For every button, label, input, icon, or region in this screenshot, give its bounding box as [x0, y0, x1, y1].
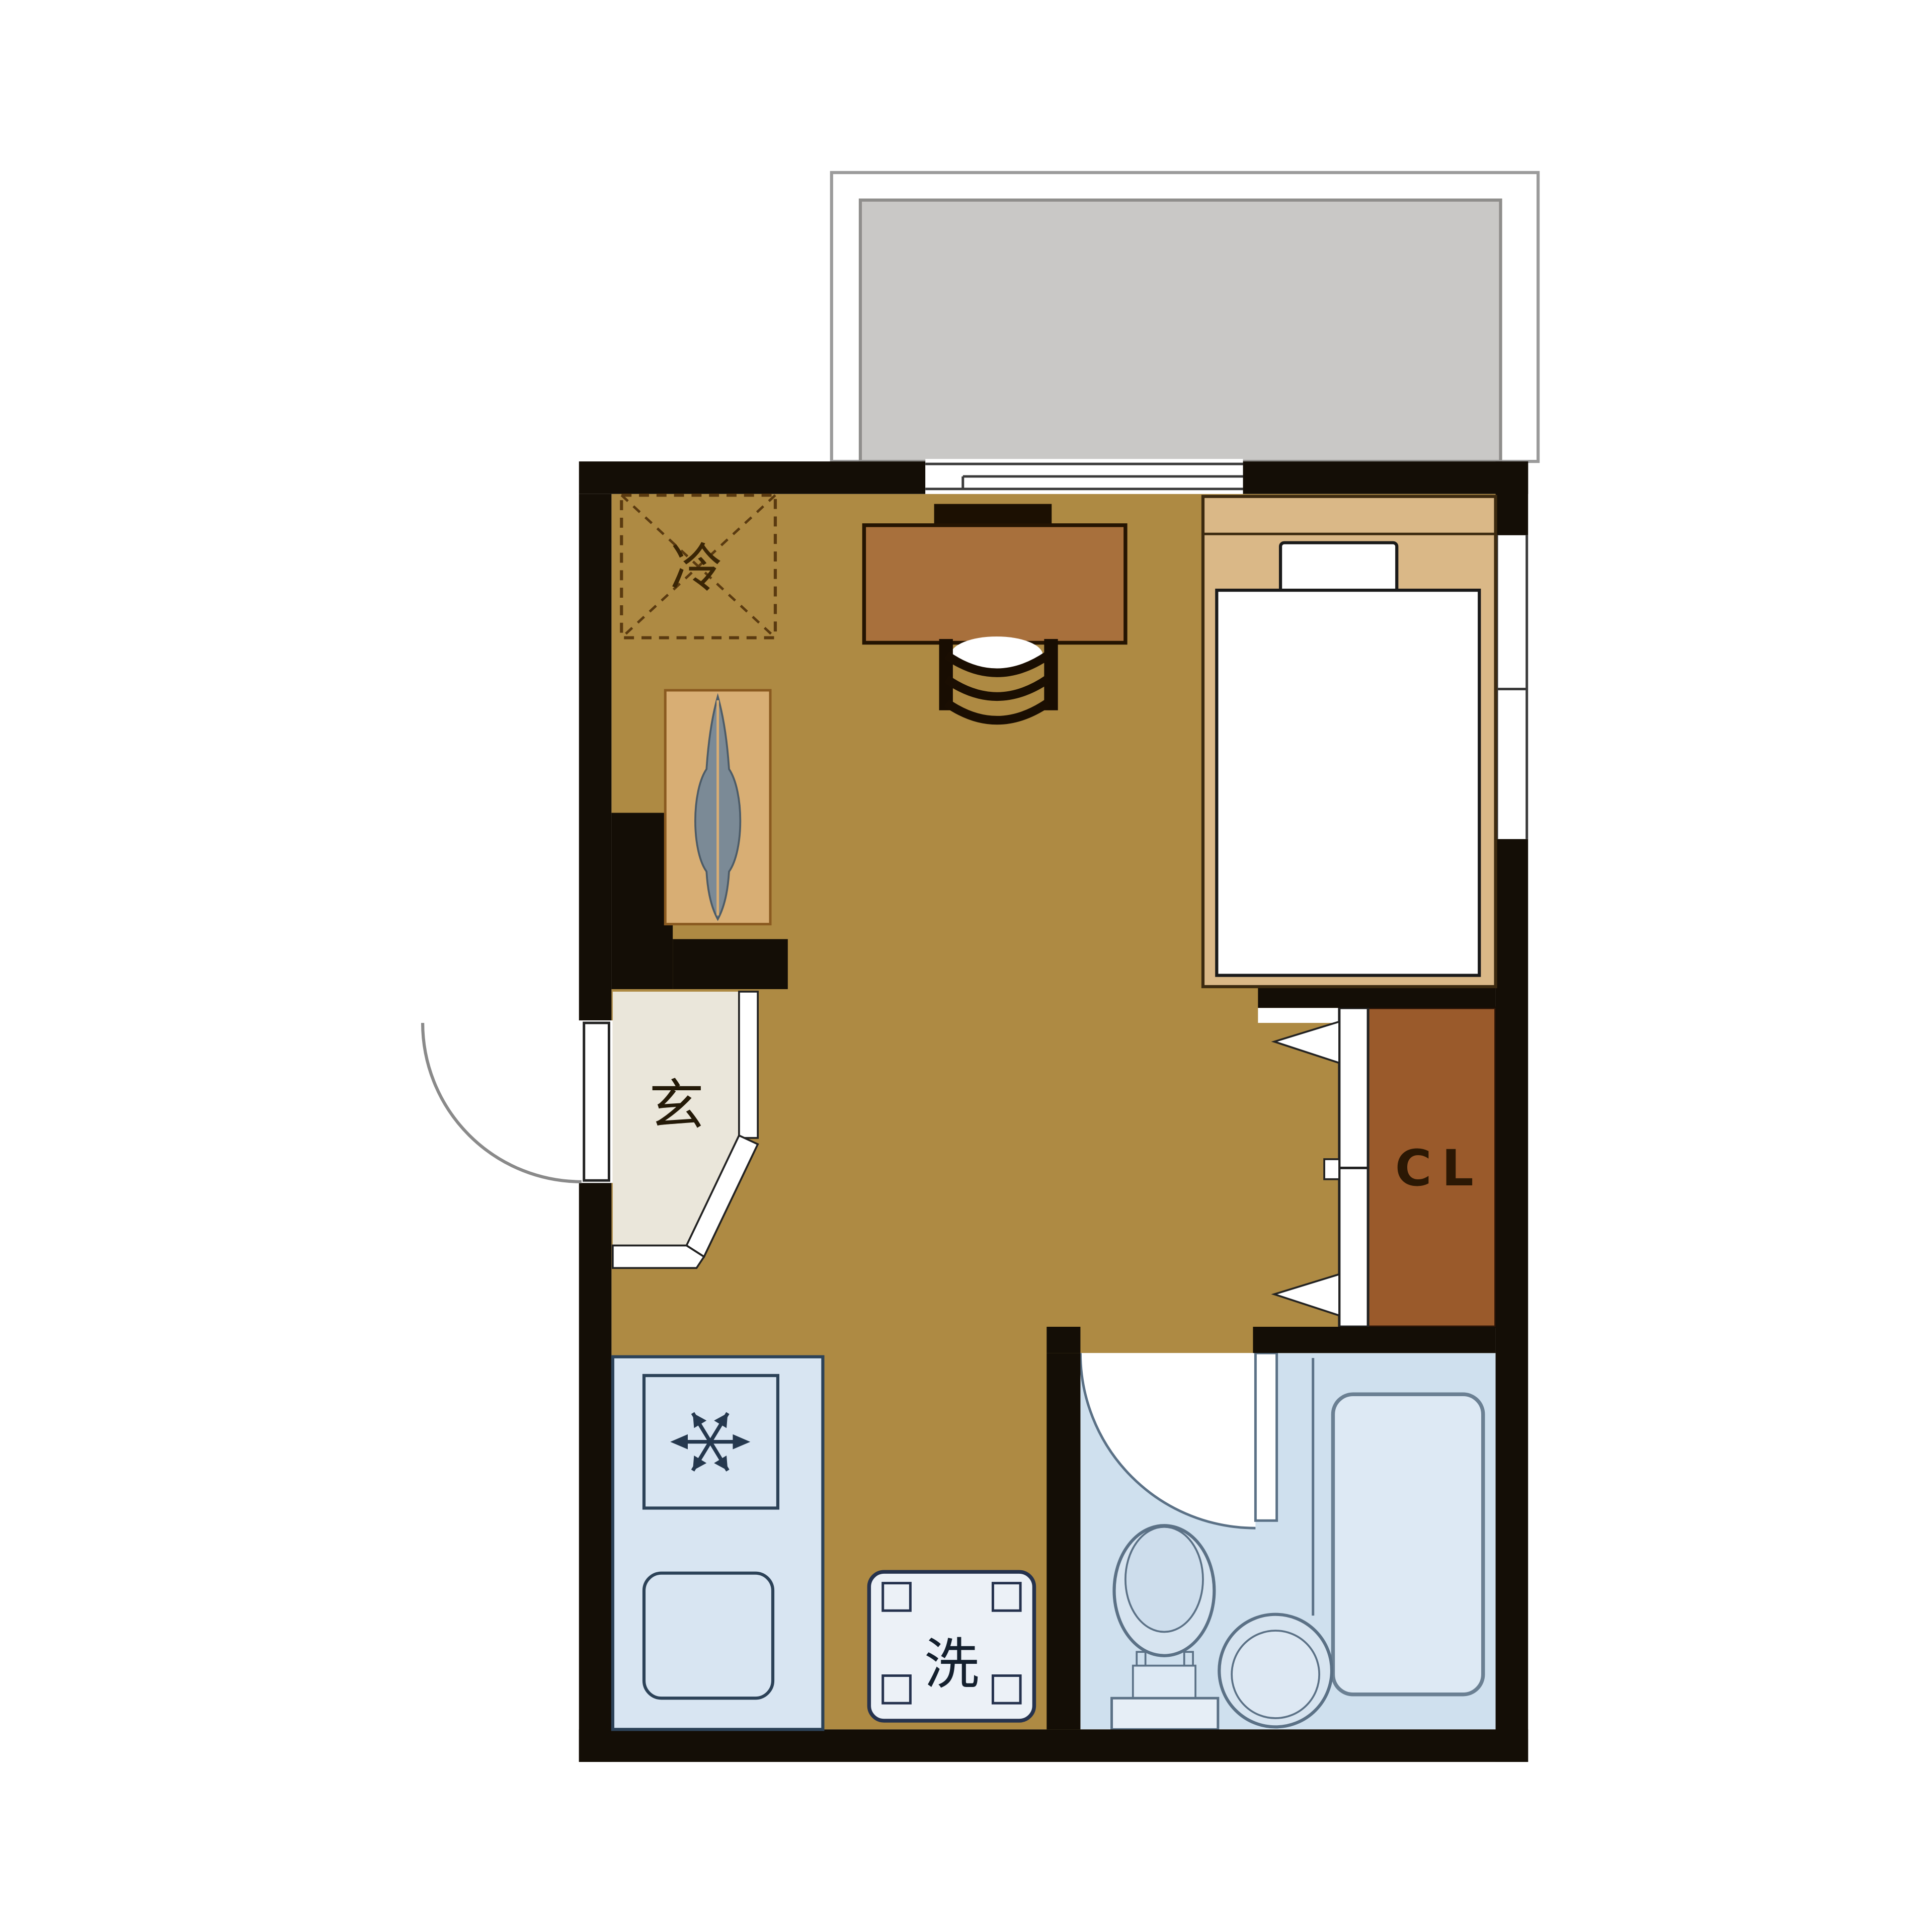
- closet-door-track: [1258, 1008, 1339, 1023]
- window-balcony-icon: [925, 459, 1243, 494]
- chair-arm-left: [939, 639, 953, 710]
- closet-door-handle: [1324, 1159, 1339, 1179]
- basin-inner: [1232, 1631, 1319, 1718]
- board-mat: [665, 690, 770, 924]
- toilet-foot-left: [1137, 1652, 1145, 1665]
- toilet-foot-right: [1184, 1652, 1193, 1665]
- bathtub-icon: [1333, 1394, 1483, 1695]
- desk: [864, 525, 1125, 643]
- wall-bath-band-right: [1253, 1327, 1495, 1353]
- wall-bath-band-left: [1046, 1327, 1080, 1353]
- toilet-icon: [1112, 1525, 1218, 1729]
- balcony-floor: [860, 200, 1501, 461]
- balcony: [832, 173, 1538, 461]
- entrance-label: 玄: [649, 1073, 704, 1137]
- bed-pillow: [1280, 543, 1397, 593]
- refrigerator-label: 冷: [670, 538, 722, 599]
- floor-plan: CL: [0, 0, 1932, 1932]
- wall-bottom: [579, 1729, 1528, 1762]
- wall-entry-bump: [611, 813, 673, 989]
- genkan-step-edge-bottom: [613, 1245, 704, 1268]
- bed-mattress: [1217, 590, 1479, 976]
- toilet-base: [1133, 1666, 1195, 1699]
- window-bed-gap: [1493, 535, 1531, 839]
- chair-arm-right: [1044, 639, 1058, 710]
- wall-left-lower: [579, 1180, 612, 1762]
- wall-bath-left: [1046, 1353, 1080, 1729]
- wall-left-upper: [579, 494, 612, 1023]
- wall-entry-bump-foot: [673, 939, 788, 989]
- toilet-seat: [1125, 1527, 1203, 1632]
- wall-top-right: [1243, 461, 1528, 494]
- closet-label: CL: [1395, 1140, 1484, 1197]
- genkan-step-edge-right: [739, 992, 758, 1138]
- bathroom-door-leaf: [1255, 1353, 1276, 1520]
- washer-label: 洗: [924, 1632, 979, 1696]
- window-bed-icon: [1493, 535, 1531, 839]
- floor-plan-page: CL: [0, 0, 1932, 1932]
- washing-machine: 洗: [869, 1572, 1034, 1721]
- entrance-door-swing: [423, 1023, 582, 1182]
- toilet-tank: [1112, 1698, 1218, 1729]
- wall-top-left: [579, 461, 925, 494]
- bathroom: [1080, 1353, 1495, 1729]
- basin-icon: [1219, 1615, 1332, 1727]
- kitchen: [613, 1357, 823, 1730]
- entrance-door-leaf: [584, 1023, 609, 1180]
- bed: [1203, 497, 1496, 987]
